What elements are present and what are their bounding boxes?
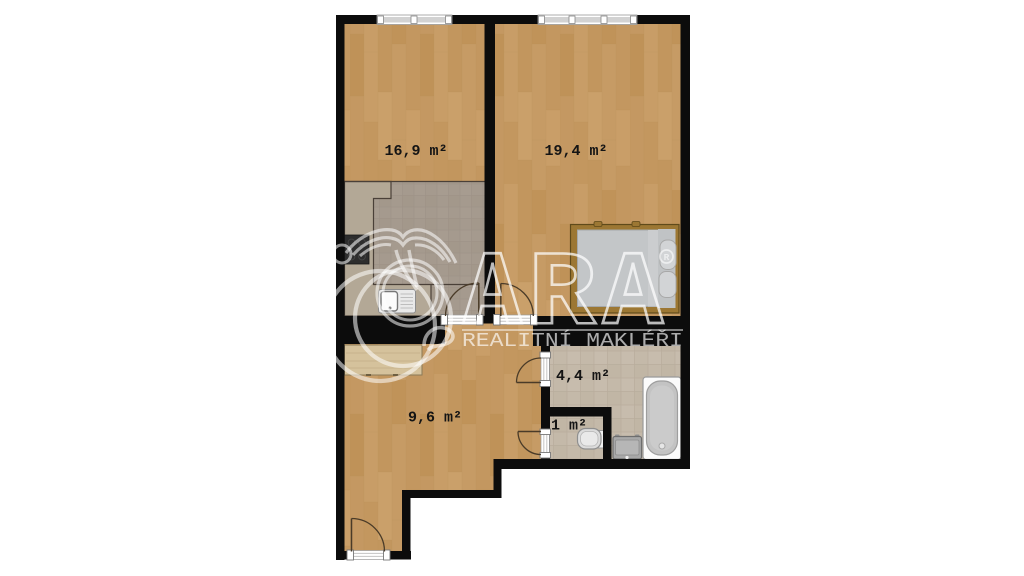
svg-text:REALITNÍ MAKLÉŘI: REALITNÍ MAKLÉŘI [462, 330, 683, 352]
svg-text:9,6 m²: 9,6 m² [408, 410, 462, 427]
svg-text:4,4 m²: 4,4 m² [556, 368, 610, 385]
svg-text:19,4 m²: 19,4 m² [544, 143, 607, 160]
svg-text:R: R [664, 252, 670, 263]
svg-text:16,9 m²: 16,9 m² [384, 143, 447, 160]
svg-text:1 m²: 1 m² [551, 418, 587, 435]
